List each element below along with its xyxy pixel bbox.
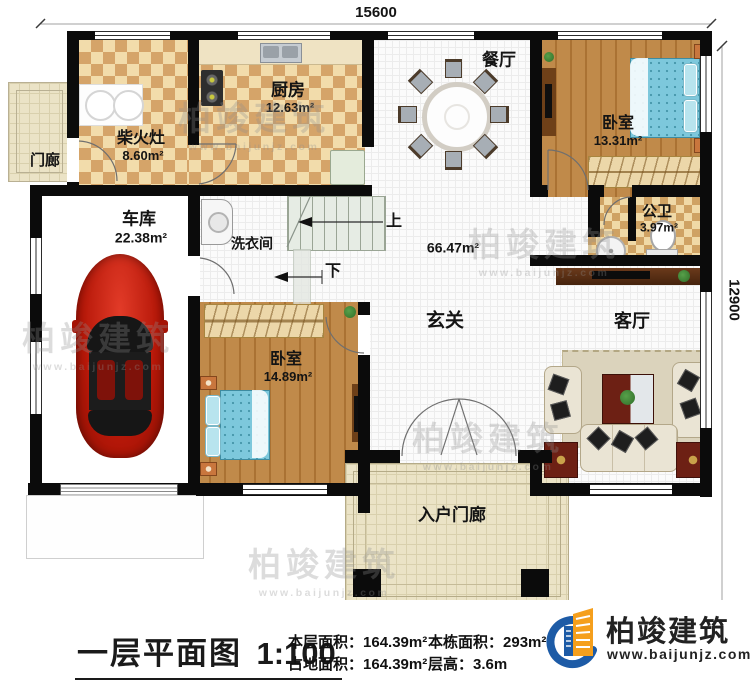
stairs-down-label: 下	[325, 263, 341, 281]
floor-height-label: 层高：	[428, 656, 473, 673]
stairs-up-label: 上	[386, 213, 402, 231]
pillow	[206, 427, 220, 456]
room-label-porch-left: 门廊	[30, 153, 60, 170]
kitchen-sink	[260, 43, 302, 63]
wall-segment	[30, 185, 372, 196]
room-area-bedroom-s: 14.89m²	[264, 370, 312, 384]
nightstand	[200, 462, 217, 476]
room-area-bath: 3.97m²	[640, 221, 678, 234]
dining-chair	[445, 151, 462, 170]
dining-chair	[445, 59, 462, 78]
wall-segment	[530, 450, 542, 496]
dining-chair	[398, 106, 417, 123]
land-area-value: 164.39m²	[363, 656, 427, 673]
stair-down-flight	[293, 249, 311, 305]
car-mirror	[160, 320, 168, 333]
window	[558, 31, 662, 40]
room-label-laundry: 洗衣间	[231, 236, 273, 251]
plant	[620, 390, 635, 405]
brand-logo-icon	[543, 604, 605, 670]
room-label-chaihuozao: 柴火灶	[117, 130, 165, 148]
door-opening	[67, 138, 79, 182]
staircase	[287, 196, 386, 251]
window	[95, 31, 170, 40]
wardrobe	[204, 304, 324, 338]
porch-column	[353, 569, 381, 597]
room-area-foyer: 66.47m²	[427, 240, 479, 255]
wall-segment	[345, 450, 400, 463]
stove-burner	[113, 90, 144, 121]
car-mirror	[72, 320, 80, 333]
floor-height-value: 3.6m	[473, 656, 507, 673]
porch-column	[521, 569, 549, 597]
room-label-entry-porch: 入户门廊	[418, 507, 486, 526]
sink-basin	[263, 46, 279, 58]
wall-segment	[530, 31, 542, 197]
kitchen-stove	[201, 70, 223, 106]
car-cabin	[89, 352, 151, 410]
plant	[678, 270, 690, 282]
window	[590, 484, 672, 495]
plant	[544, 52, 554, 62]
window	[30, 342, 42, 414]
room-area-chaihuozao: 8.60m²	[122, 149, 163, 163]
tv	[592, 271, 650, 279]
room-area-bedroom-ne: 13.31m²	[594, 134, 642, 148]
garage-door	[60, 484, 178, 495]
window	[388, 31, 474, 40]
dim-top: 15600	[355, 5, 397, 22]
pillow	[684, 64, 697, 96]
wall-segment	[628, 197, 636, 241]
car	[76, 254, 164, 458]
desk-monitor	[545, 84, 552, 118]
room-label-foyer: 玄关	[426, 312, 464, 333]
window	[30, 238, 42, 294]
plan-title: 一层平面图	[77, 636, 242, 671]
room-label-garage: 车库	[122, 211, 156, 230]
wall-segment	[362, 31, 374, 147]
door-opening	[188, 256, 200, 296]
room-area-garage: 22.38m²	[115, 230, 167, 245]
room-label-bath: 公卫	[642, 204, 672, 221]
stove-burner	[85, 90, 116, 121]
room-label-bedroom-s: 卧室	[270, 351, 302, 369]
wall-segment	[30, 185, 42, 495]
car-seat	[97, 360, 115, 400]
wall-segment	[188, 40, 199, 145]
plant	[344, 306, 356, 318]
room-label-kitchen: 厨房	[271, 82, 305, 101]
land-area-label: 占地面积：	[288, 656, 363, 673]
total-area-label: 本栋面积：	[428, 634, 503, 651]
room-label-living: 客厅	[614, 312, 650, 332]
floor-area-value: 164.39m²	[363, 634, 427, 651]
stats-column-1: 本层面积：164.39m² 占地面积：164.39m²	[288, 632, 427, 676]
kitchen-fridge	[330, 150, 365, 185]
total-area-value: 293m²	[503, 634, 546, 651]
wall-segment	[188, 196, 200, 492]
footer: 一层平面图 1:100 本层面积：164.39m² 占地面积：164.39m² …	[0, 600, 750, 680]
sink-basin	[282, 46, 298, 58]
garage-apron	[26, 495, 204, 559]
wall-segment	[530, 255, 712, 266]
room-label-dining: 餐厅	[482, 52, 516, 71]
window	[700, 292, 712, 428]
window	[700, 56, 712, 132]
brand-name: 柏竣建筑	[606, 608, 730, 650]
stats-column-2: 本栋面积：293m² 层高：3.6m	[428, 632, 546, 676]
wardrobe	[588, 156, 708, 188]
brand-url: www.baijunjz.com	[607, 646, 750, 662]
wall-segment	[588, 185, 604, 197]
dining-chair	[490, 106, 509, 123]
window	[243, 484, 327, 495]
bed-s-duvet	[252, 390, 268, 458]
room-area-kitchen: 12.63m²	[266, 101, 314, 115]
pillow	[684, 100, 697, 132]
dim-right: 12900	[725, 279, 742, 321]
pillow	[206, 396, 220, 425]
floor-area-label: 本层面积：	[288, 634, 363, 651]
car-seat	[125, 360, 143, 400]
window	[238, 31, 330, 40]
nightstand	[200, 376, 217, 390]
wall-segment	[588, 197, 600, 237]
washer-drum	[208, 212, 229, 233]
door-opening	[358, 315, 370, 355]
car-rear-window	[88, 410, 152, 436]
table-ring	[444, 104, 470, 130]
room-label-bedroom-ne: 卧室	[602, 115, 634, 133]
floor-plan: 15600 12900 柴火灶 8.60m² 厨房 12.63m² 门廊 车库 …	[0, 0, 750, 680]
